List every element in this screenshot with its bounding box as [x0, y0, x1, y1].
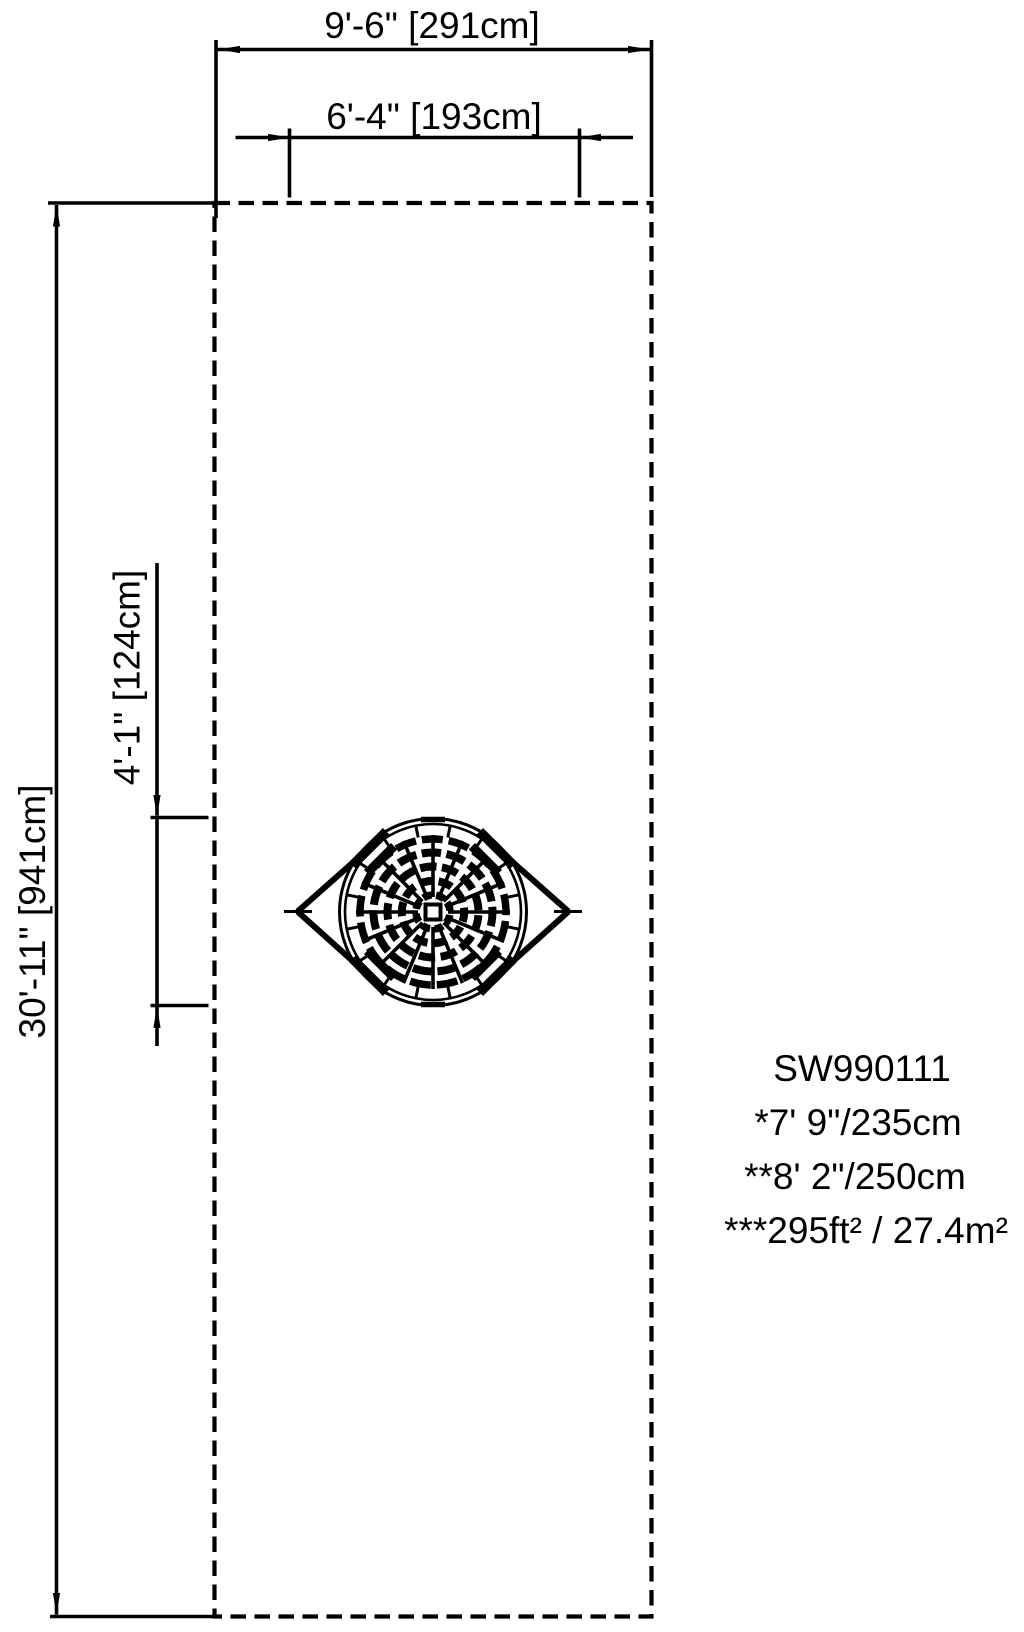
svg-text:6'-4" [193cm]: 6'-4" [193cm]: [326, 96, 542, 137]
svg-text:SW990111: SW990111: [773, 1048, 951, 1089]
svg-text:30'-11" [941cm]: 30'-11" [941cm]: [12, 785, 53, 1039]
svg-text:*7' 9"/235cm: *7' 9"/235cm: [754, 1102, 961, 1143]
svg-text:9'-6" [291cm]: 9'-6" [291cm]: [324, 5, 540, 46]
svg-text:**8' 2"/250cm: **8' 2"/250cm: [744, 1156, 966, 1197]
svg-text:***295ft² / 27.4m²: ***295ft² / 27.4m²: [724, 1210, 1008, 1251]
svg-text:4'-1" [124cm]: 4'-1" [124cm]: [107, 570, 148, 786]
